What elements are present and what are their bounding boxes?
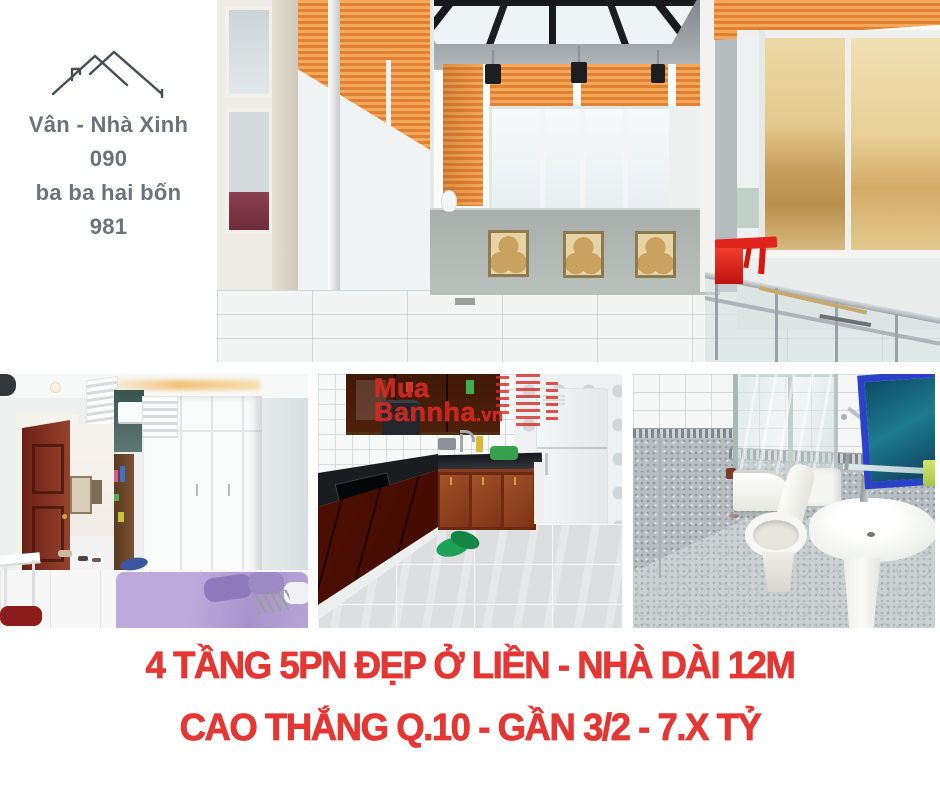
ornamental-window — [563, 231, 604, 278]
real-estate-flyer: Vân - Nhà Xinh 090 ba ba hai bốn 981 — [0, 0, 940, 788]
watermark-seal-column — [496, 376, 509, 418]
soap-bottle — [476, 436, 483, 452]
phone-line-2: ba ba hai bốn — [0, 176, 217, 210]
sink-faucet — [438, 430, 484, 456]
watermark-line2: Bannha — [374, 397, 476, 427]
photo-bathroom — [633, 374, 935, 628]
wood-blind-panel — [765, 38, 851, 253]
cabinet-handle — [482, 477, 484, 485]
photo-kitchen: Mua Bannha.vn — [318, 374, 622, 628]
towel-hook — [841, 414, 847, 420]
faucet-arc — [460, 430, 475, 442]
shelf-item — [118, 512, 124, 522]
left-pillar — [272, 0, 298, 332]
wall-fan — [441, 190, 457, 212]
bed — [116, 572, 308, 628]
air-conditioner — [118, 402, 144, 424]
pot — [438, 438, 456, 450]
contact-card: Vân - Nhà Xinh 090 ba ba hai bốn 981 — [0, 44, 217, 244]
floor-vent — [455, 298, 475, 305]
sink-basin — [809, 498, 935, 562]
photo-bedroom — [0, 374, 308, 628]
desk-leg — [4, 564, 7, 612]
speaker-wire — [492, 50, 494, 64]
skylight-beam — [549, 0, 556, 44]
cabinet-door — [469, 472, 504, 530]
picture-frame — [70, 476, 92, 514]
cabinet-door — [437, 472, 472, 530]
slippers — [58, 550, 72, 557]
house-roof-icon — [50, 44, 168, 98]
toilet-bowl-rim — [753, 520, 799, 550]
picture-frame — [92, 480, 102, 504]
orange-blind-left — [298, 0, 430, 192]
green-cloth — [436, 532, 482, 560]
ornamental-window — [635, 231, 676, 278]
shoes — [78, 556, 88, 561]
photo-living-room — [217, 0, 940, 362]
bench-leg — [775, 288, 778, 362]
speaker — [651, 64, 665, 83]
speaker — [485, 64, 501, 84]
shower-enclosure — [733, 374, 838, 478]
wardrobe-handle — [196, 484, 198, 496]
red-table — [715, 238, 779, 288]
window-mullion — [623, 109, 628, 213]
skylight — [399, 0, 709, 44]
fridge-handle — [545, 453, 548, 475]
counter-end-panel — [534, 462, 544, 524]
side-window — [225, 108, 273, 234]
ceiling-spotlight — [50, 382, 61, 393]
watermark-text: Mua Bannha.vn — [374, 376, 504, 427]
speaker-wire — [578, 46, 580, 62]
glass-streaks — [738, 374, 834, 478]
door-edge — [659, 434, 661, 578]
green-cup — [923, 460, 935, 486]
hallway — [70, 424, 114, 576]
window-mullion — [540, 109, 545, 213]
watermark-seal-column — [516, 374, 540, 428]
red-table-leg — [758, 248, 766, 274]
frosted-pane-right — [737, 38, 759, 250]
blind-gap — [668, 64, 676, 108]
rust-stain — [729, 514, 739, 518]
shelf-item — [120, 466, 125, 482]
window-mullion — [328, 0, 340, 304]
red-cushion — [0, 606, 42, 626]
door-handle — [637, 466, 648, 471]
white-desk — [0, 554, 44, 628]
cabinet-handle — [450, 477, 452, 485]
bench-leg — [715, 276, 718, 360]
phone-line-1: 090 — [0, 142, 217, 176]
desk-leg — [32, 560, 35, 612]
cabinets-right — [434, 469, 536, 527]
door-handle — [62, 514, 67, 519]
bench-leg — [835, 302, 838, 362]
toilet-bowl — [745, 512, 807, 558]
window-mullion — [580, 109, 585, 213]
phone-line-3: 981 — [0, 210, 217, 244]
wardrobe-vent — [142, 396, 178, 438]
speaker — [571, 62, 587, 83]
red-table-leg — [743, 248, 751, 269]
ornamental-window — [488, 230, 529, 277]
brand-name: Vân - Nhà Xinh — [0, 108, 217, 142]
watermark-seal-column — [546, 382, 558, 422]
right-window-frame — [737, 30, 940, 38]
window-mullion — [386, 60, 391, 304]
wood-blind-panel — [851, 38, 940, 253]
skylight-beam — [602, 0, 633, 44]
speaker-wire — [657, 50, 659, 64]
counter-left-arm — [318, 454, 438, 628]
headline-line-2: CAO THẮNG Q.10 - GẦN 3/2 - 7.X TỶ — [19, 707, 921, 750]
bench-leg — [895, 314, 898, 362]
maroon-glass — [229, 192, 269, 230]
skylight-beam — [482, 0, 513, 44]
shoes — [92, 558, 101, 562]
cabinet-handle — [514, 477, 516, 485]
drain-hole — [867, 532, 875, 537]
cabinet-door — [501, 472, 536, 530]
blind-wood-shade — [443, 64, 483, 206]
green-basket — [490, 446, 518, 460]
left-side-wall — [217, 0, 272, 320]
wardrobe-handle — [228, 484, 230, 496]
door-panel — [32, 444, 64, 494]
cove-light — [95, 380, 260, 390]
orange-blind-tall — [443, 64, 483, 206]
side-window — [225, 6, 273, 98]
white-tiles-left — [633, 374, 733, 428]
frosted-window-back — [489, 106, 675, 216]
left-window — [298, 0, 434, 304]
headline-line-1: 4 TẦNG 5PN ĐẸP Ở LIỀN - NHÀ DÀI 12M — [19, 645, 921, 688]
red-table-box — [715, 248, 743, 284]
green-reflection — [737, 188, 759, 228]
